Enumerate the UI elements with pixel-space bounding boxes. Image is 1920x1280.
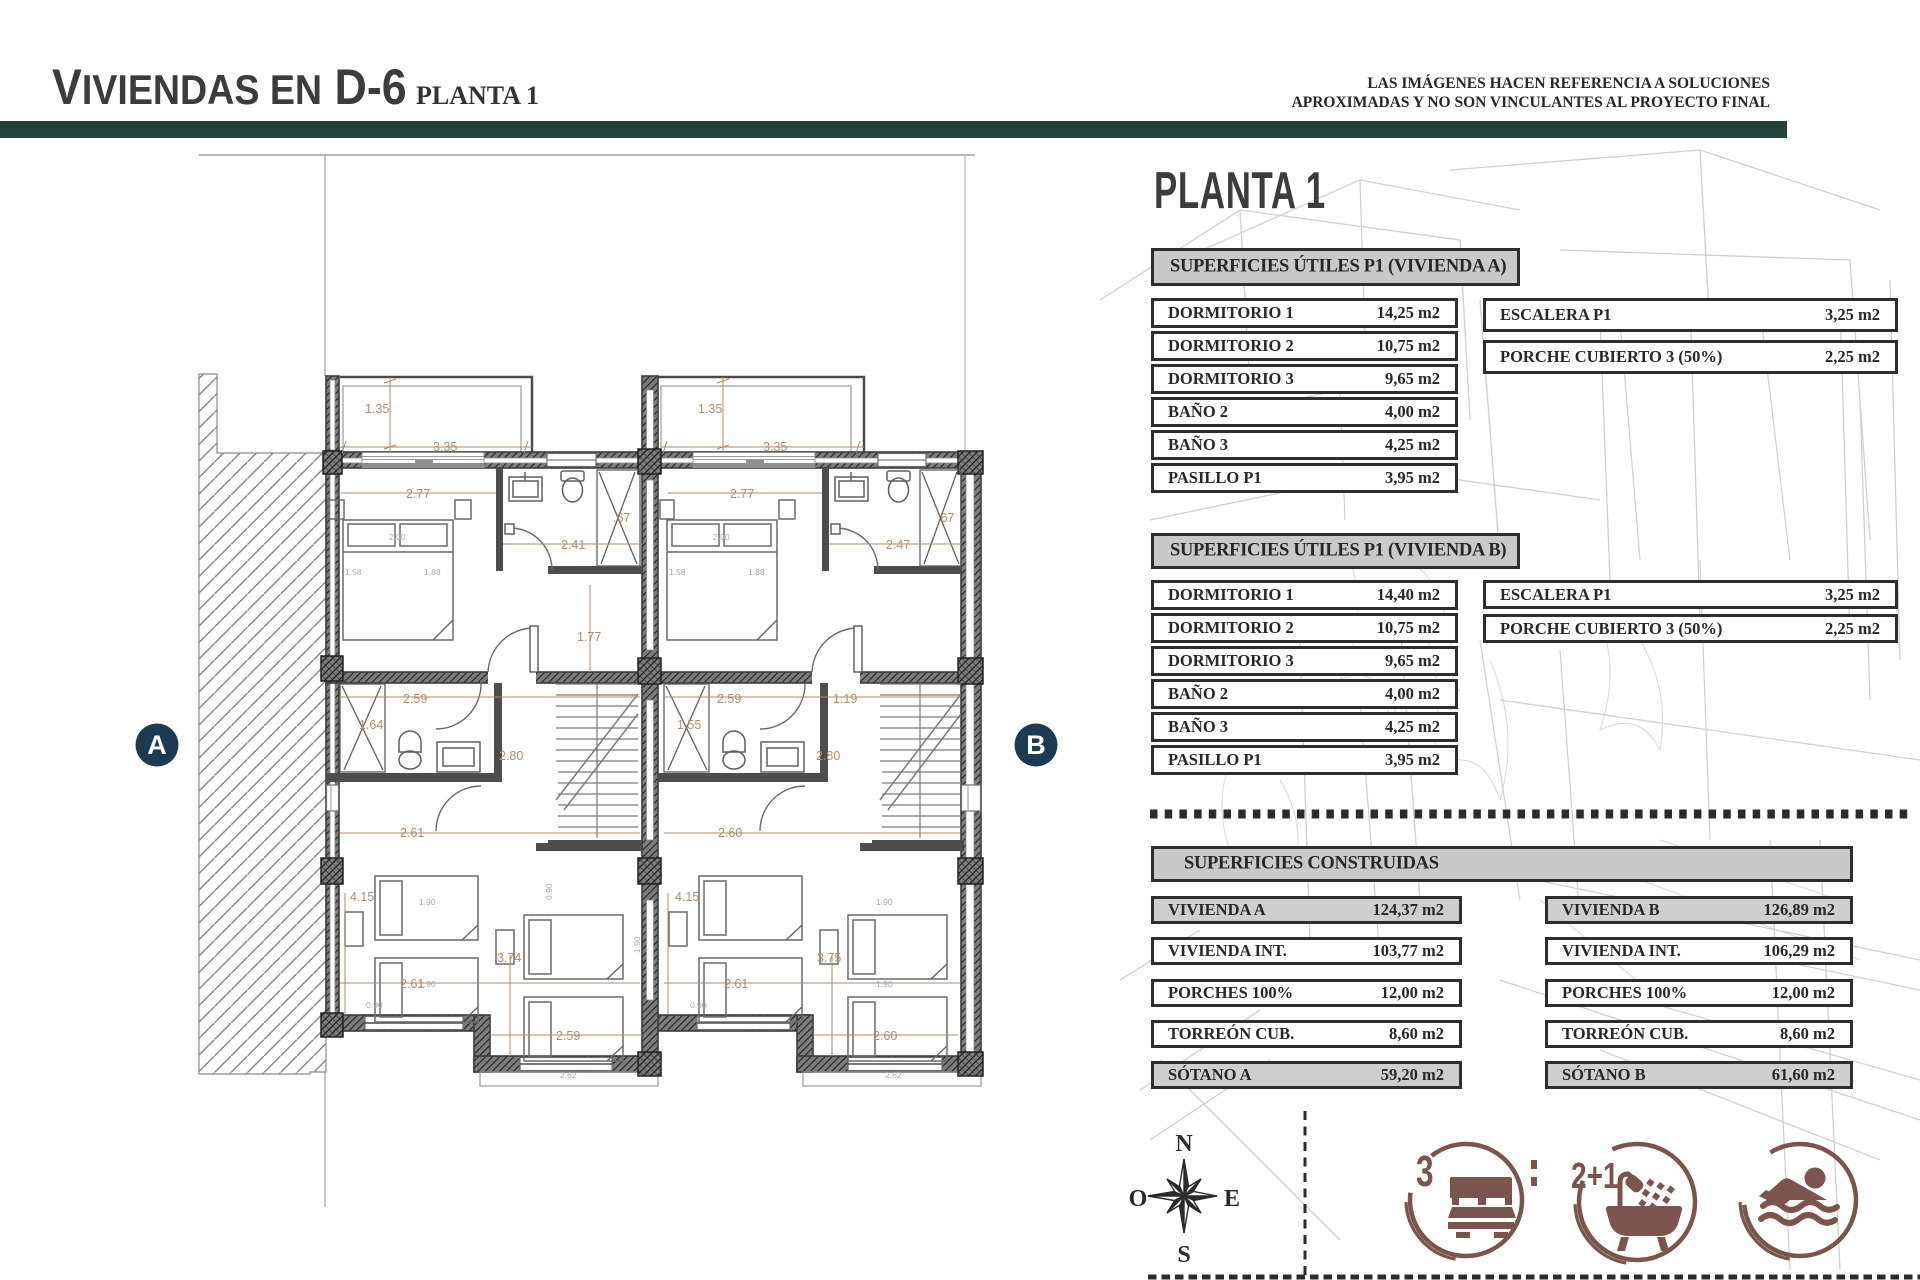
svg-text:2.61: 2.61	[724, 977, 748, 991]
svg-text:1.58: 1.58	[669, 567, 686, 577]
svg-text:1.35: 1.35	[365, 402, 389, 416]
svg-text:2+1: 2+1	[1571, 1156, 1619, 1196]
svg-text:4.15: 4.15	[675, 890, 699, 904]
svg-text:0.90: 0.90	[366, 1000, 383, 1010]
svg-text:0.90: 0.90	[544, 883, 554, 900]
svg-text:2.41: 2.41	[561, 538, 585, 552]
svg-text:1.77: 1.77	[577, 630, 601, 644]
svg-text:0.90: 0.90	[690, 1000, 707, 1010]
svg-text:1.90: 1.90	[632, 936, 642, 953]
svg-text:2.59: 2.59	[556, 1029, 580, 1043]
svg-text:3.75: 3.75	[817, 951, 841, 965]
svg-text:3.74: 3.74	[497, 951, 521, 965]
svg-text:1.88: 1.88	[748, 567, 765, 577]
svg-text:S: S	[1177, 1242, 1190, 1268]
svg-text:.67: .67	[613, 511, 630, 525]
svg-text:1.88: 1.88	[424, 567, 441, 577]
svg-text:2.80: 2.80	[816, 749, 840, 763]
svg-text:2.80: 2.80	[499, 749, 523, 763]
svg-text:.67: .67	[937, 511, 954, 525]
svg-text:2.00: 2.00	[713, 532, 730, 542]
svg-text:4.15: 4.15	[350, 890, 374, 904]
svg-text:1.19: 1.19	[833, 692, 857, 706]
svg-text:1.64: 1.64	[359, 718, 383, 732]
svg-text:N: N	[1175, 1131, 1193, 1157]
svg-text:2.59: 2.59	[403, 692, 427, 706]
svg-text:A: A	[147, 730, 167, 760]
svg-text:E: E	[1224, 1186, 1240, 1212]
svg-text:3: 3	[1416, 1147, 1434, 1196]
svg-text:2.62: 2.62	[560, 1070, 577, 1080]
svg-text:2.77: 2.77	[406, 487, 430, 501]
svg-text:2.77: 2.77	[730, 487, 754, 501]
svg-text:2.62: 2.62	[885, 1070, 902, 1080]
svg-text:B: B	[1026, 730, 1046, 760]
svg-text:O: O	[1129, 1186, 1148, 1212]
svg-text:1.90: 1.90	[419, 897, 436, 907]
svg-text:2.47: 2.47	[886, 538, 910, 552]
svg-text:1.55: 1.55	[677, 718, 701, 732]
svg-text:2.59: 2.59	[717, 692, 741, 706]
svg-text:1.58: 1.58	[345, 567, 362, 577]
svg-text:1.90: 1.90	[876, 897, 893, 907]
svg-text:1.90: 1.90	[876, 979, 893, 989]
svg-text:1.35: 1.35	[698, 402, 722, 416]
svg-text:1.90: 1.90	[419, 979, 436, 989]
svg-text:2.00: 2.00	[389, 532, 406, 542]
svg-text:2.60: 2.60	[873, 1029, 897, 1043]
